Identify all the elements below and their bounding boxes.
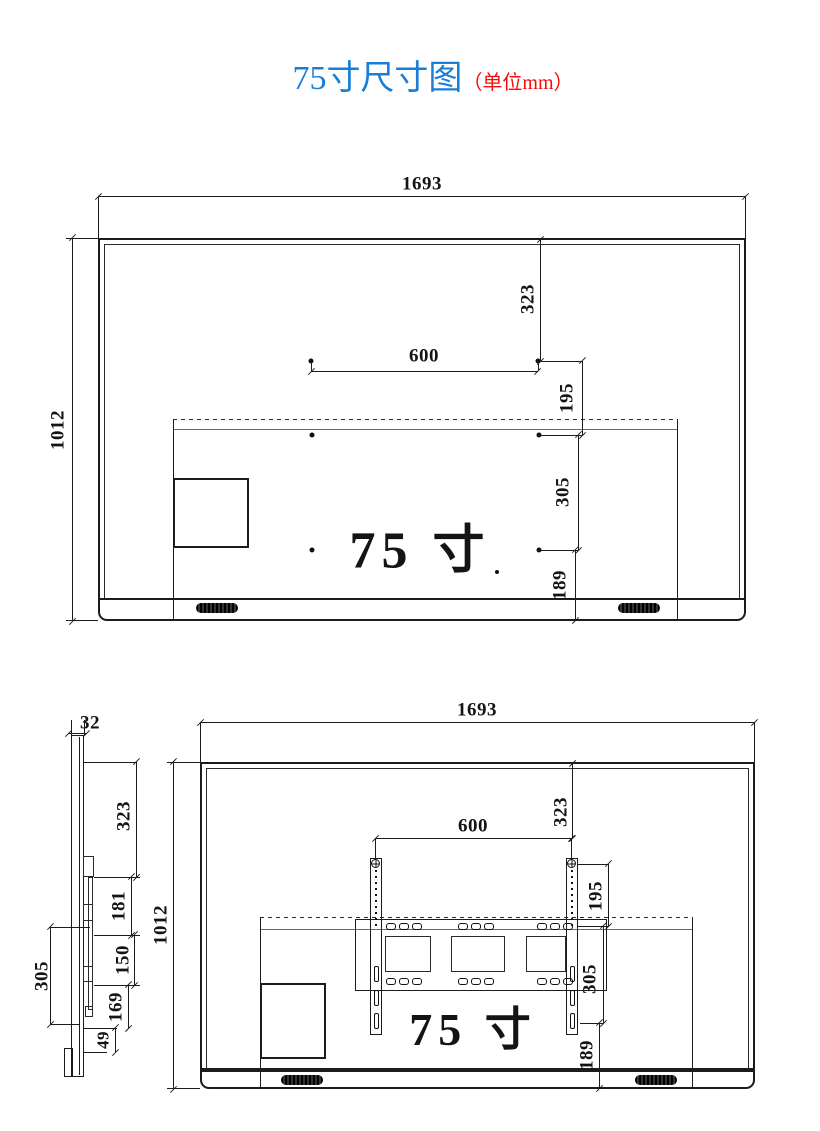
- front-width-dim-line: [98, 196, 746, 197]
- rear-vesa-width-dim: 600: [458, 817, 488, 836]
- ext-line: [571, 838, 572, 858]
- rail-slot: [374, 1013, 379, 1029]
- rear-height-dim-line: [173, 762, 174, 1089]
- ext-line: [167, 1088, 200, 1089]
- side-169-dim-line: [128, 985, 129, 1028]
- rail-screw: [567, 859, 576, 868]
- front-323-dim: 323: [519, 284, 538, 314]
- wall-plate-slot: [550, 923, 560, 930]
- rail-slot: [570, 1013, 575, 1029]
- ext-line: [577, 864, 608, 865]
- rear-size-label: 75 寸: [409, 993, 537, 1059]
- side-150-dim: 150: [114, 945, 133, 975]
- ext-line: [50, 1024, 80, 1025]
- rear-width-dim: 1693: [457, 701, 497, 720]
- wall-plate-slot: [471, 923, 481, 930]
- wall-plate-slot: [412, 923, 422, 930]
- wall-plate-slot: [386, 978, 396, 985]
- rear-323-dim-line: [572, 764, 573, 838]
- wall-plate-slot: [458, 978, 468, 985]
- rear-width-dim-line: [200, 722, 755, 723]
- side-hook-top: [83, 856, 94, 877]
- front-vesa-width-dim-line: [311, 371, 538, 372]
- side-181-dim-line: [131, 877, 132, 935]
- rail-slot: [570, 966, 575, 982]
- wall-plate-slot: [471, 978, 481, 985]
- ext-line: [538, 361, 582, 362]
- front-189-dim: 189: [551, 570, 570, 600]
- front-height-dim-line: [72, 238, 73, 621]
- mount-hole: [310, 548, 315, 553]
- ext-line: [745, 196, 746, 238]
- rear-height-dim: 1012: [152, 905, 171, 945]
- front-height-dim: 1012: [49, 410, 68, 450]
- ext-line: [50, 927, 90, 928]
- rear-305-dim-line: [603, 926, 604, 1023]
- front-speaker-left: [196, 603, 238, 613]
- side-49-dim-line: [115, 1028, 116, 1052]
- ext-line: [167, 762, 200, 763]
- ext-line: [311, 362, 312, 371]
- ext-line: [200, 722, 201, 762]
- rear-305-dim: 305: [581, 964, 600, 994]
- ext-line: [754, 722, 755, 762]
- rear-ops-box: [260, 983, 326, 1059]
- side-wallplate-strip: [88, 877, 93, 1010]
- title-unit-note: （单位mm）: [462, 72, 573, 94]
- rear-speaker-left: [281, 1075, 323, 1085]
- rail-slot: [374, 966, 379, 982]
- wall-plate-slot: [386, 923, 396, 930]
- side-150-dim-line: [134, 935, 135, 985]
- rail-slot: [374, 990, 379, 1006]
- rear-323-dim: 323: [552, 797, 571, 827]
- rear-panel-right-edge: [692, 917, 693, 1088]
- rail-screw: [371, 859, 380, 868]
- side-169-dim: 169: [107, 992, 126, 1022]
- front-speaker-right: [618, 603, 660, 613]
- wall-plate-slot: [537, 923, 547, 930]
- rear-189-dim-line: [599, 1023, 600, 1088]
- front-width-dim: 1693: [402, 175, 442, 194]
- front-ops-box: [173, 478, 249, 548]
- front-195-dim: 195: [558, 383, 577, 413]
- ext-line: [98, 196, 99, 238]
- front-size-label: 75 寸: [349, 508, 490, 583]
- ext-line: [375, 838, 376, 858]
- title-text: 75寸尺寸图: [292, 60, 462, 97]
- rear-panel-dashed-edge: [260, 917, 692, 918]
- front-305-dim-line: [578, 435, 579, 550]
- front-vesa-width-dim: 600: [409, 347, 439, 366]
- side-181-dim: 181: [110, 891, 129, 921]
- mount-hole: [310, 433, 315, 438]
- wall-plate-cutout: [451, 936, 505, 972]
- wall-plate-slot: [537, 978, 547, 985]
- front-panel-dashed-edge: [173, 419, 677, 420]
- rail-hole-pattern: [571, 870, 573, 928]
- front-189-dim-line: [575, 550, 576, 620]
- side-323-dim: 323: [115, 801, 134, 831]
- rail-slot: [570, 990, 575, 1006]
- wall-plate-cutout: [385, 936, 431, 972]
- dimension-drawing: 75寸尺寸图（单位mm） 1693 1012 600 323 195 305 1…: [0, 0, 820, 1131]
- ext-line: [71, 720, 72, 735]
- ext-line: [94, 985, 140, 986]
- front-305-dim: 305: [554, 477, 573, 507]
- front-195-dim-line: [582, 361, 583, 435]
- side-bottom-step: [64, 1048, 73, 1077]
- wall-plate-slot: [399, 978, 409, 985]
- front-panel-right-edge: [677, 419, 678, 620]
- ext-line: [84, 1052, 107, 1053]
- front-panel-top-edge: [173, 429, 677, 430]
- label-period-dot: [495, 570, 499, 574]
- rear-195-dim-line: [608, 864, 609, 926]
- wall-plate-cutout: [526, 936, 566, 972]
- rear-speaker-right: [635, 1075, 677, 1085]
- wall-plate-slot: [412, 978, 422, 985]
- rear-189-dim: 189: [578, 1040, 597, 1070]
- wall-plate-slot: [550, 978, 560, 985]
- rail-hole-pattern: [375, 870, 377, 928]
- ext-line: [84, 762, 136, 763]
- page-title: 75寸尺寸图（单位mm）: [0, 50, 820, 99]
- wall-plate-slot: [484, 978, 494, 985]
- rear-195-dim: 195: [587, 881, 606, 911]
- ext-line: [94, 877, 140, 878]
- ext-line: [66, 620, 98, 621]
- side-323-dim-line: [136, 762, 137, 877]
- wall-plate-slot: [484, 923, 494, 930]
- front-323-dim-line: [540, 240, 541, 361]
- wall-plate-slot: [399, 923, 409, 930]
- wall-plate-slot: [458, 923, 468, 930]
- side-305-dim: 305: [33, 961, 52, 991]
- rear-vesa-width-dim-line: [375, 838, 572, 839]
- side-thickness-dim: 32: [80, 714, 100, 733]
- ext-line: [66, 238, 98, 239]
- side-49-dim: 49: [95, 1031, 112, 1049]
